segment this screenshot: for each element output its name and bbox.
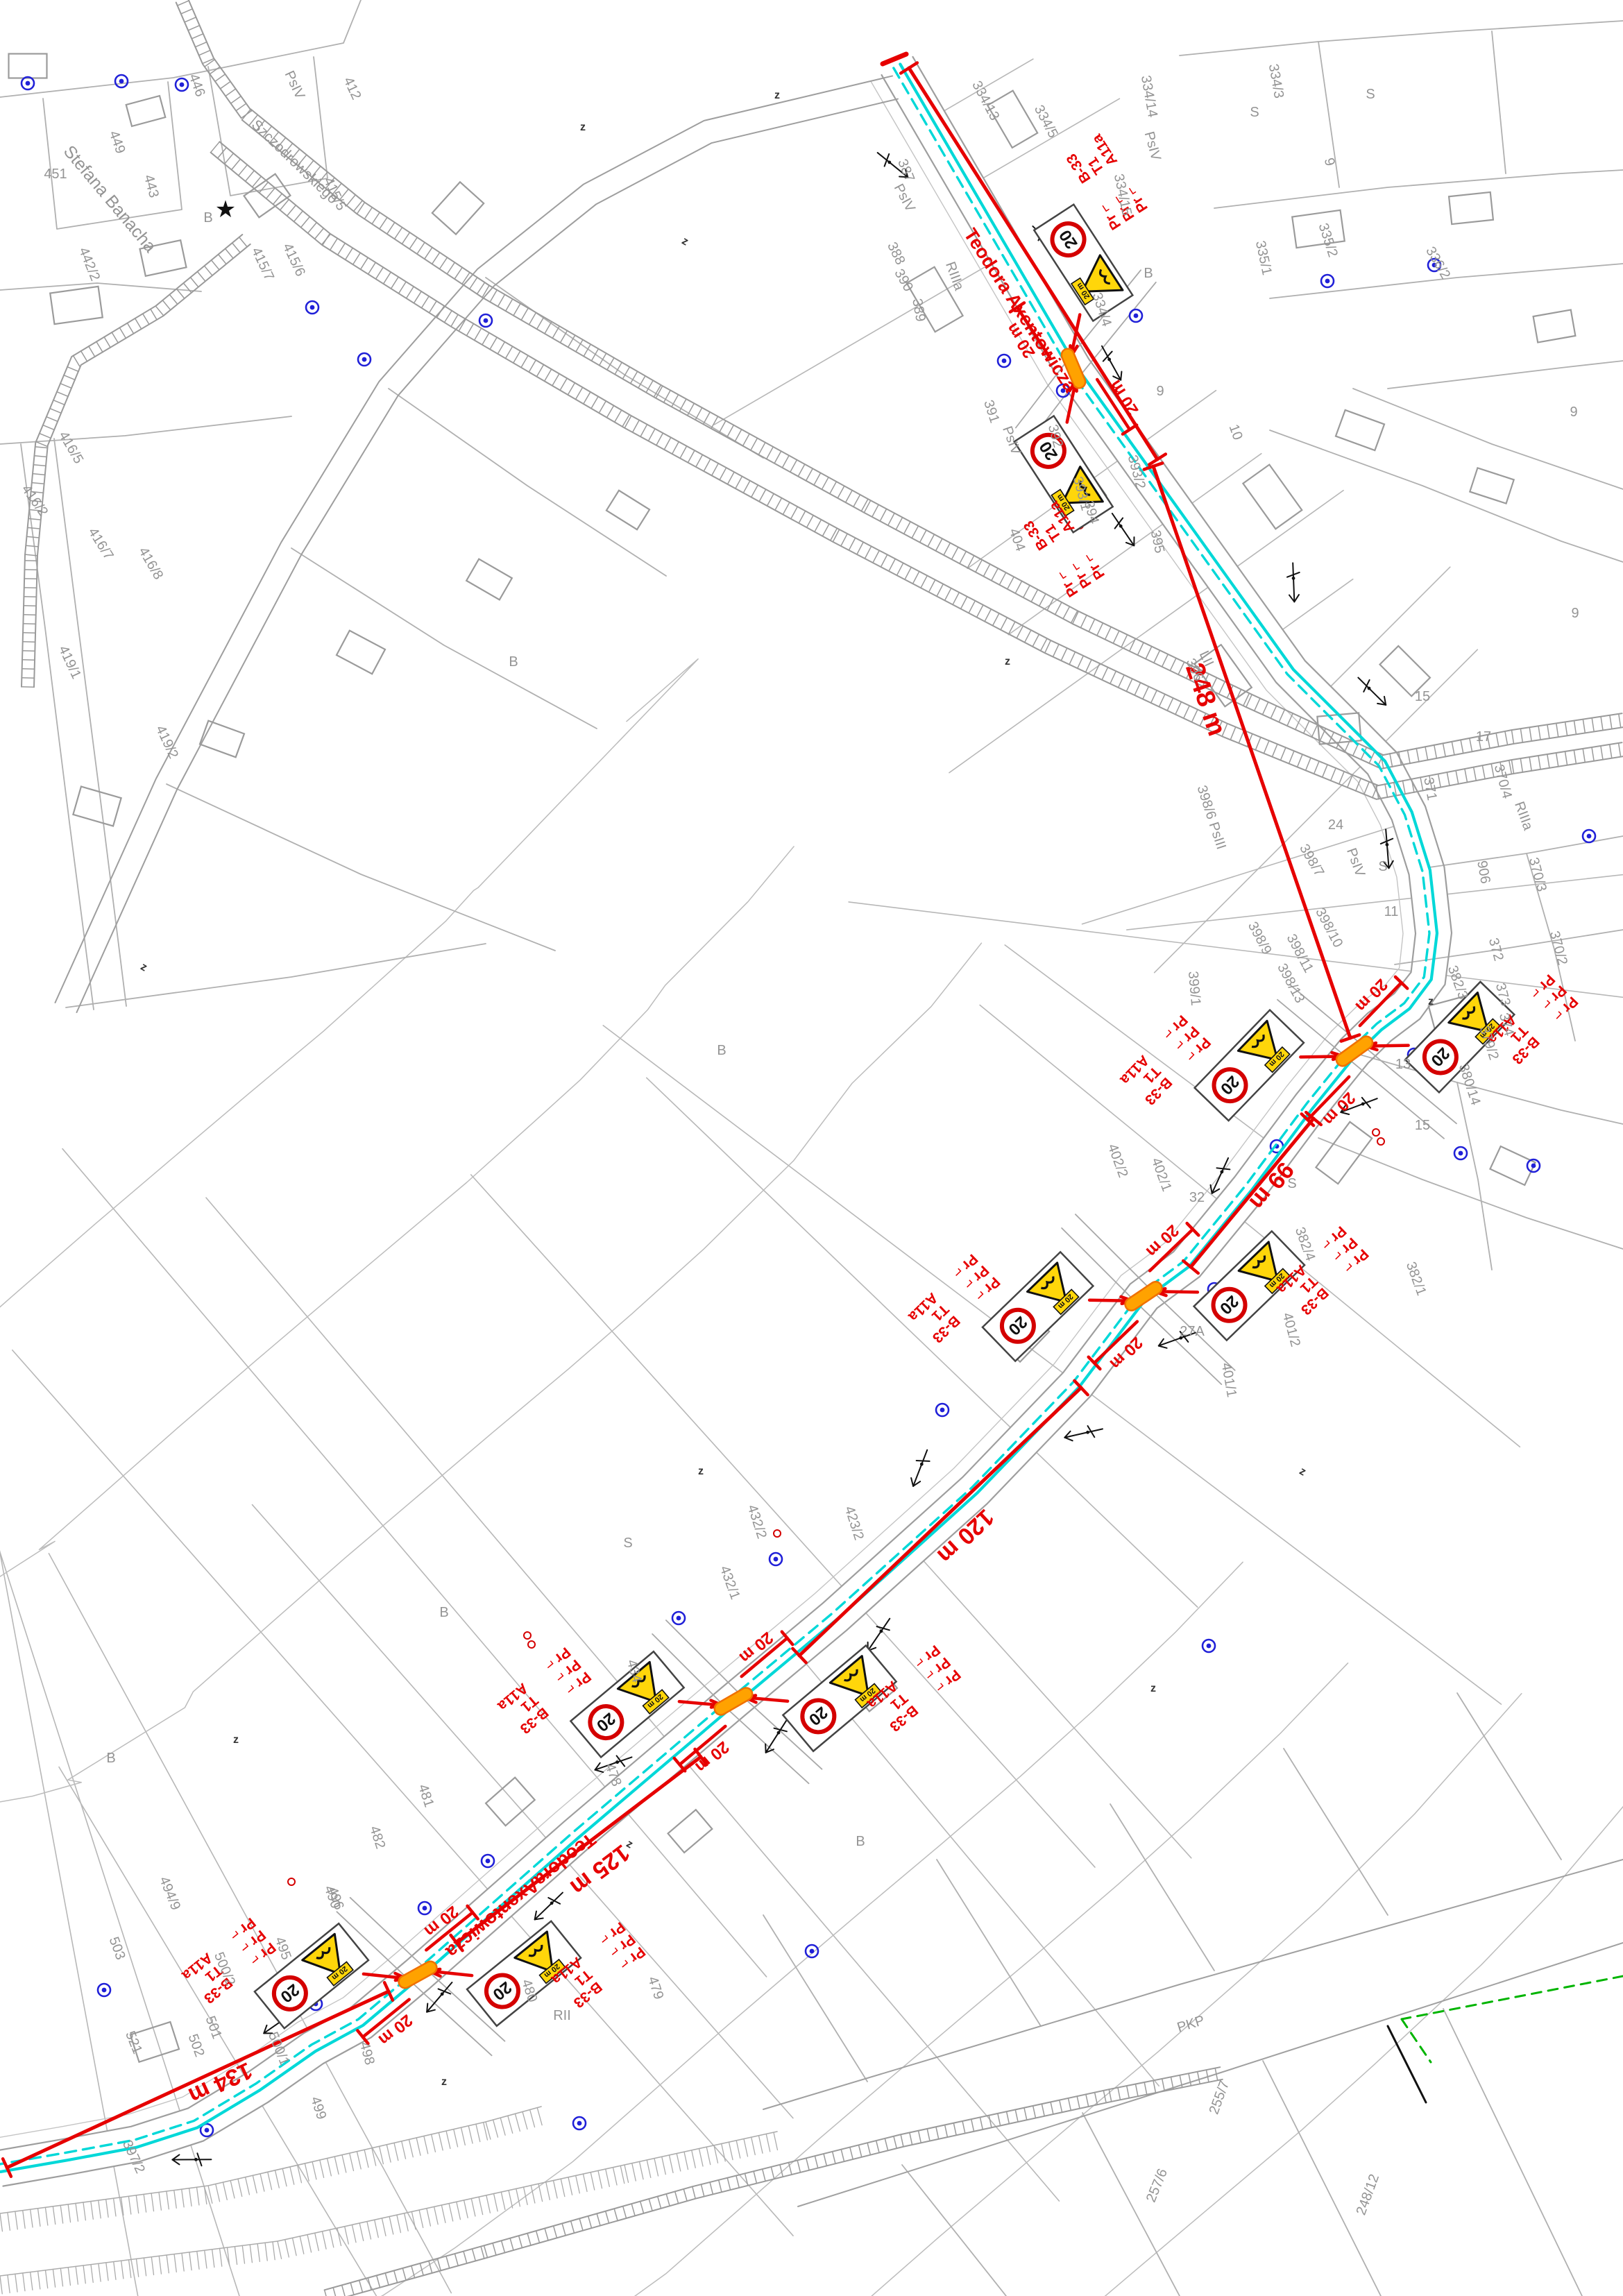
utility-blue-inner: [677, 1616, 681, 1621]
parcel-label: 9: [1156, 384, 1164, 399]
utility-blue-inner: [1459, 1151, 1463, 1156]
utility-blue-inner: [940, 1408, 945, 1413]
parcel-label: 17: [1476, 729, 1491, 745]
traffic-plan-map: ★zzzzzzzzzzzz98 m248 m99 m120 m125 m134 …: [0, 0, 1623, 2296]
fence-z-mark: z: [1150, 1683, 1156, 1694]
utility-blue-inner: [1587, 834, 1592, 839]
parcel-label: B: [106, 1751, 115, 1766]
parcel-label: 399/1: [1185, 971, 1203, 1007]
parcel-label: B: [203, 210, 212, 226]
parcel-label: B: [1144, 266, 1153, 281]
utility-blue-inner: [1325, 279, 1330, 284]
fence-z-mark: z: [580, 121, 586, 133]
parcel-label: 451: [44, 167, 67, 182]
parcel-label: S: [1287, 1176, 1296, 1191]
utility-blue-inner: [205, 2128, 210, 2133]
utility-blue-inner: [774, 1557, 779, 1562]
parcel-label: 9: [1571, 606, 1579, 621]
parcel-label: 13: [1395, 1057, 1411, 1072]
utility-blue-inner: [810, 1949, 815, 1954]
parcel-label: 32: [1189, 1190, 1205, 1205]
parcel-label: B: [856, 1834, 865, 1849]
fence-z-mark: z: [1428, 996, 1434, 1007]
parcel-label: S: [623, 1536, 632, 1551]
parcel-label: RII: [553, 2008, 571, 2023]
survey-dot: [194, 2158, 198, 2161]
utility-blue-inner: [119, 79, 124, 84]
fence-z-mark: z: [441, 2076, 447, 2088]
utility-blue-inner: [484, 318, 488, 323]
parcel-label: B: [439, 1605, 448, 1620]
parcel-label: S: [1250, 105, 1259, 120]
map-svg: ★zzzzzzzzzzzz98 m248 m99 m120 m125 m134 …: [0, 0, 1623, 2296]
utility-blue-inner: [1207, 1644, 1212, 1649]
fence-z-mark: z: [698, 1465, 704, 1477]
parcel-label: 15: [1415, 1118, 1430, 1133]
utility-blue-inner: [423, 1906, 427, 1911]
utility-blue-inner: [362, 357, 367, 362]
parcel-label: 15: [1415, 689, 1430, 704]
utility-blue-inner: [310, 305, 315, 310]
fence-z-mark: z: [774, 90, 780, 101]
parcel-label: B: [509, 654, 518, 670]
utility-blue-inner: [1002, 359, 1007, 364]
parcel-label: S: [1378, 859, 1387, 874]
fence-z-mark: z: [233, 1734, 239, 1746]
utility-blue-inner: [577, 2121, 582, 2126]
utility-blue-inner: [102, 1988, 107, 1993]
utility-blue-inner: [26, 81, 31, 86]
parcel-label: S: [1366, 87, 1375, 102]
star-symbol: ★: [215, 196, 236, 223]
utility-blue-inner: [180, 83, 185, 87]
parcel-label: 27A: [1180, 1324, 1205, 1339]
parcel-label: 9: [1570, 405, 1577, 420]
parcel-label: B: [717, 1043, 726, 1058]
utility-blue-inner: [1134, 314, 1139, 318]
parcel-label: 11: [1384, 904, 1399, 919]
utility-blue-inner: [486, 1859, 491, 1864]
utility-blue-inner: [1531, 1164, 1536, 1168]
fence-z-mark: z: [1005, 656, 1010, 667]
parcel-label: 24: [1328, 817, 1343, 833]
